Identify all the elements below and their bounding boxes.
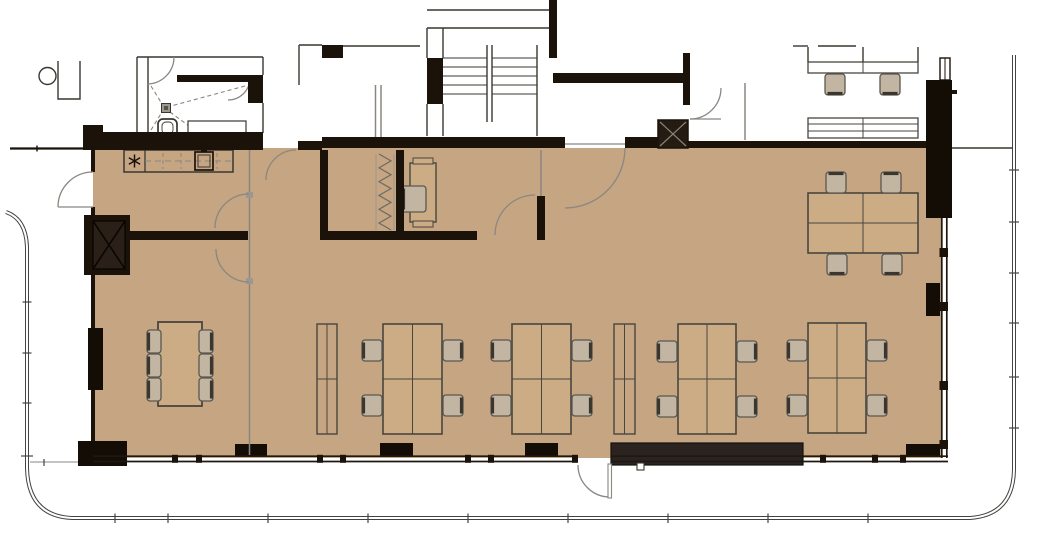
floor-plan-canvas [0,0,1054,547]
column-circle [39,68,56,85]
facade-entry-door-arc [578,465,610,497]
wall-upper-room [553,73,688,83]
left-wall-pier [88,328,103,390]
chair [826,172,846,193]
wall-cloakroom-left [320,150,328,238]
structural-column [84,215,130,275]
chair [825,74,845,95]
neighbor-cabinet [58,61,80,99]
upper-corridor-lines [299,45,420,137]
facade-entry-door-leaf [608,464,612,498]
wall-bathroom-stub [248,75,263,103]
bathroom-door-arc [147,57,174,84]
wall-meeting-stub [126,231,248,240]
stair-core [427,10,553,136]
facade-pier-right [926,283,940,316]
bathroom [137,57,263,141]
chair [827,254,847,275]
chair [881,172,901,193]
wall-cloakroom-bottom [320,231,477,240]
floor-plan-drawing [0,0,1054,547]
corner-pier [926,80,952,218]
wall-top-left [83,132,263,150]
wall-top-right [688,141,926,148]
shaft [658,120,688,148]
left-exit-door-arc [58,172,93,207]
facade-pier-se [906,444,940,456]
wall-top-middle [322,137,565,148]
upper-room-door-arc [690,88,721,119]
meeting-table [158,322,202,406]
wall-cloakroom-divider [396,150,404,238]
chair [880,74,900,95]
wall-stair [427,58,443,104]
chair [882,254,902,275]
door-handle-marker [637,463,644,470]
stair-treads [443,58,537,94]
chair [402,186,426,212]
